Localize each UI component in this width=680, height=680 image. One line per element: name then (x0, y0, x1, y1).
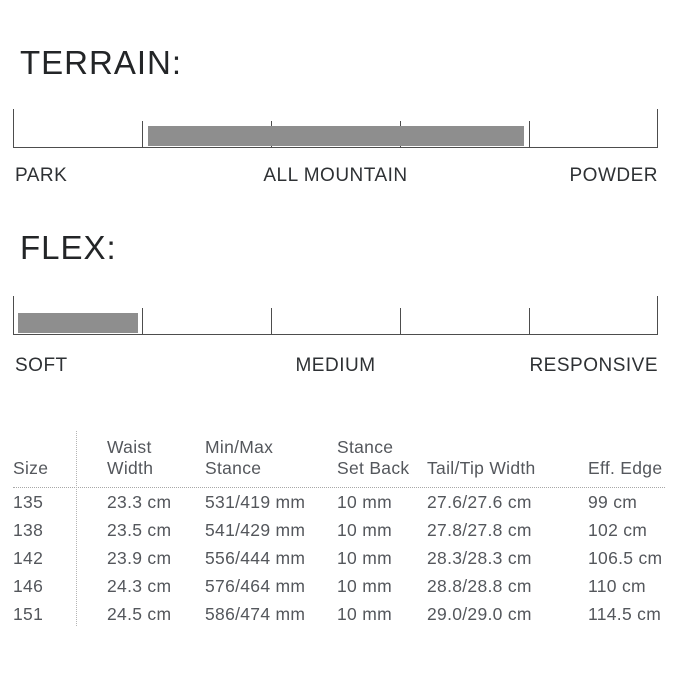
table-cell: 135 (13, 488, 107, 516)
table-cell: 10 mm (337, 544, 427, 572)
table-cell: 99 cm (588, 488, 665, 516)
scale-tick (529, 308, 530, 334)
scale-tick (657, 296, 658, 334)
scale-tick (13, 296, 14, 334)
table-cell: 27.6/27.6 cm (427, 488, 588, 516)
table-cell: 531/419 mm (205, 488, 337, 516)
header-waist-width: Waist Width (107, 437, 205, 479)
size-column-divider (76, 431, 77, 626)
table-cell: 27.8/27.8 cm (427, 516, 588, 544)
flex-rating-bar (18, 313, 138, 333)
table-cell: 28.3/28.3 cm (427, 544, 588, 572)
flex-section-title: FLEX: (20, 231, 117, 265)
table-cell: 541/429 mm (205, 516, 337, 544)
scale-tick (657, 109, 658, 147)
scale-tick (400, 308, 401, 334)
table-header-row: Size Waist Width Min/Max Stance Stance S… (13, 431, 665, 479)
table-cell: 106.5 cm (588, 544, 665, 572)
scale-tick (271, 308, 272, 334)
terrain-scale (13, 109, 658, 148)
table-cell: 10 mm (337, 572, 427, 600)
table-cell: 102 cm (588, 516, 665, 544)
table-cell: 110 cm (588, 572, 665, 600)
header-stance-set-back: Stance Set Back (337, 437, 427, 479)
spec-table: Size Waist Width Min/Max Stance Stance S… (13, 431, 665, 628)
header-size: Size (13, 458, 107, 479)
table-cell: 10 mm (337, 488, 427, 516)
table-row: 151 24.5 cm 586/474 mm 10 mm 29.0/29.0 c… (13, 600, 665, 628)
table-cell: 24.3 cm (107, 572, 205, 600)
flex-scale (13, 296, 658, 335)
terrain-label-all-mountain: ALL MOUNTAIN (13, 165, 658, 187)
scale-tick (13, 109, 14, 147)
flex-scale-labels: SOFT MEDIUM RESPONSIVE (13, 355, 658, 377)
table-row: 142 23.9 cm 556/444 mm 10 mm 28.3/28.3 c… (13, 544, 665, 572)
table-row: 138 23.5 cm 541/429 mm 10 mm 27.8/27.8 c… (13, 516, 665, 544)
table-cell: 138 (13, 516, 107, 544)
terrain-rating-bar (148, 126, 524, 146)
flex-label-responsive: RESPONSIVE (529, 355, 658, 377)
scale-tick (142, 308, 143, 334)
table-cell: 24.5 cm (107, 600, 205, 628)
table-cell: 586/474 mm (205, 600, 337, 628)
table-cell: 28.8/28.8 cm (427, 572, 588, 600)
table-cell: 151 (13, 600, 107, 628)
header-min-max-stance: Min/Max Stance (205, 437, 337, 479)
table-cell: 23.3 cm (107, 488, 205, 516)
table-row: 135 23.3 cm 531/419 mm 10 mm 27.6/27.6 c… (13, 488, 665, 516)
header-eff-edge: Eff. Edge (588, 458, 665, 479)
terrain-label-powder: POWDER (570, 165, 659, 187)
table-cell: 114.5 cm (588, 600, 665, 628)
table-cell: 146 (13, 572, 107, 600)
table-cell: 10 mm (337, 516, 427, 544)
header-tail-tip-width: Tail/Tip Width (427, 458, 588, 479)
terrain-section-title: TERRAIN: (20, 46, 182, 80)
table-row: 146 24.3 cm 576/464 mm 10 mm 28.8/28.8 c… (13, 572, 665, 600)
table-cell: 23.9 cm (107, 544, 205, 572)
table-cell: 29.0/29.0 cm (427, 600, 588, 628)
table-cell: 576/464 mm (205, 572, 337, 600)
table-cell: 23.5 cm (107, 516, 205, 544)
table-cell: 556/444 mm (205, 544, 337, 572)
terrain-scale-labels: PARK ALL MOUNTAIN POWDER (13, 165, 658, 187)
scale-tick (529, 121, 530, 147)
scale-tick (142, 121, 143, 147)
table-cell: 10 mm (337, 600, 427, 628)
table-cell: 142 (13, 544, 107, 572)
